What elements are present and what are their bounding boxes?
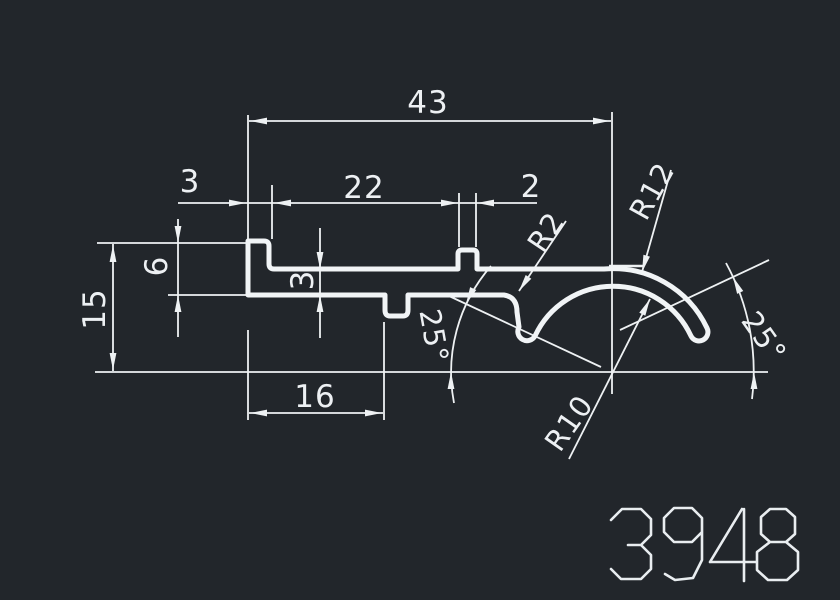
part-number-digit-9 bbox=[664, 508, 702, 580]
dim-label-step-3: 3 bbox=[180, 164, 201, 200]
dim-label-15: 15 bbox=[77, 288, 113, 329]
part-number-digit-3 bbox=[611, 509, 651, 579]
dim-label-angle-right: 25° bbox=[734, 305, 793, 369]
part-number bbox=[611, 508, 798, 581]
part-number-digit-4 bbox=[710, 509, 756, 581]
dim-label-6: 6 bbox=[139, 256, 175, 277]
dim-label-r12: R12 bbox=[623, 156, 682, 225]
dim-label-22: 22 bbox=[343, 170, 384, 206]
dim-label-16: 16 bbox=[294, 379, 335, 415]
cad-drawing-canvas: 43 3 22 2 16 15 6 3 R2 R12 R10 25° 25° bbox=[0, 0, 840, 600]
drawing-svg: 43 3 22 2 16 15 6 3 R2 R12 R10 25° 25° bbox=[0, 0, 840, 600]
dim-label-r2: R2 bbox=[521, 206, 572, 259]
dim-label-43: 43 bbox=[407, 85, 448, 121]
part-number-digit-8 bbox=[757, 509, 798, 580]
dim-label-r10: R10 bbox=[538, 389, 600, 458]
arc-left-25 bbox=[451, 266, 491, 403]
dim-label-angle-left: 25° bbox=[413, 306, 456, 365]
dim-label-2: 2 bbox=[521, 169, 542, 205]
ray-left-25 bbox=[449, 296, 601, 367]
dim-label-web-3: 3 bbox=[285, 270, 321, 291]
